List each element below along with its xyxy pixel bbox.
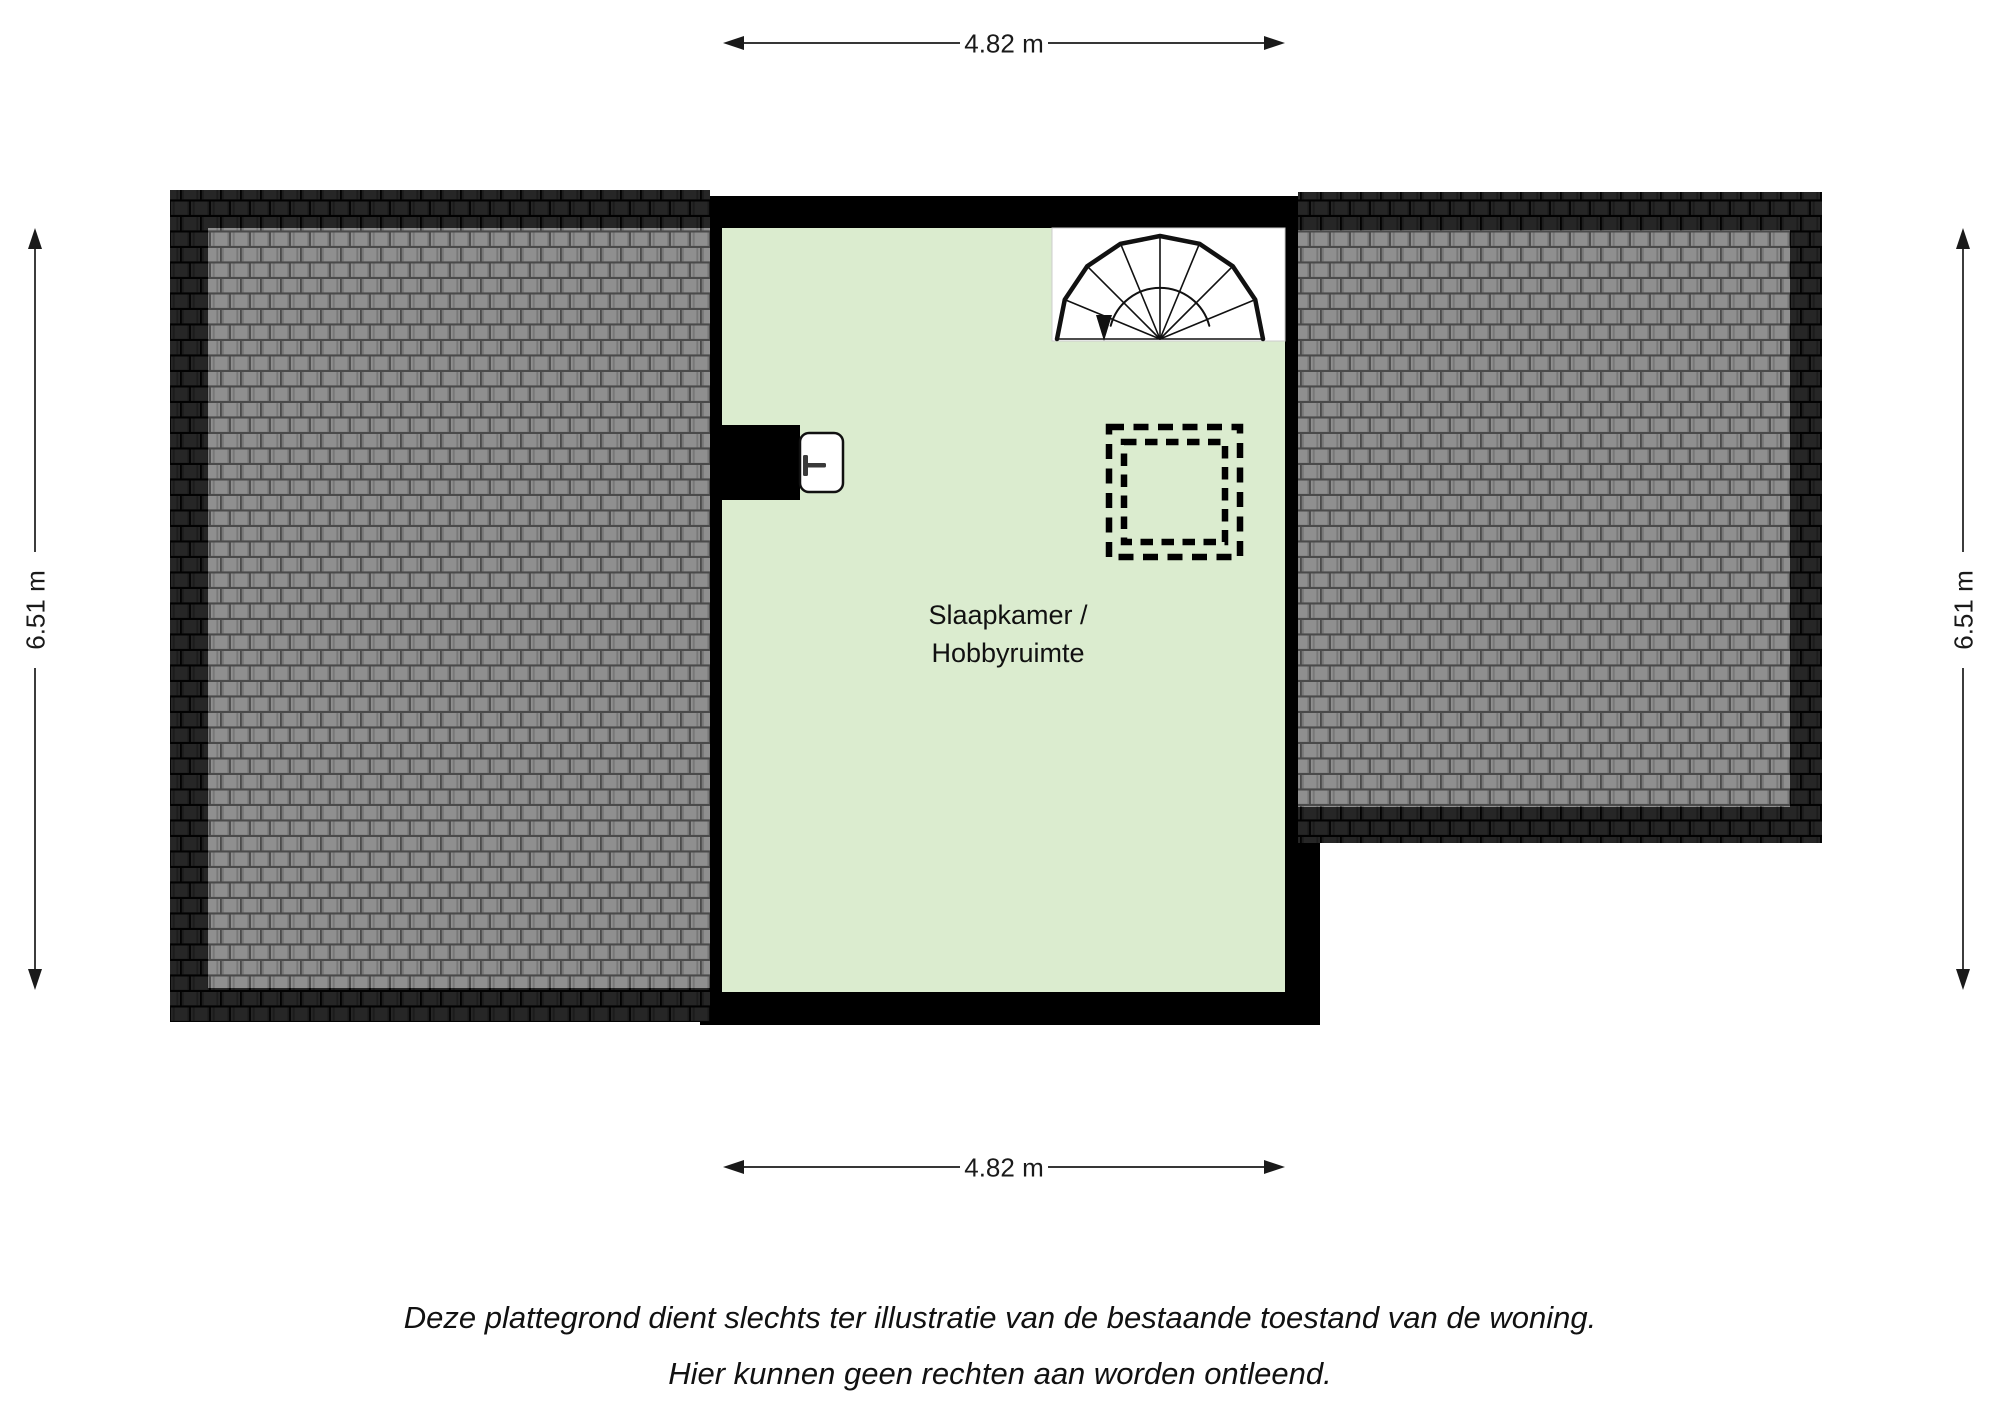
dimension-bottom-label: 4.82 m bbox=[964, 1153, 1044, 1184]
room-label-line1: Slaapkamer / bbox=[928, 596, 1087, 634]
disclaimer-line2: Hier kunnen geen rechten aan worden ontl… bbox=[0, 1346, 2000, 1402]
dimension-right-label: 6.51 m bbox=[1949, 570, 1980, 650]
roof-right bbox=[1298, 192, 1822, 843]
disclaimer-line1: Deze plattegrond dient slechts ter illus… bbox=[0, 1290, 2000, 1346]
room-label: Slaapkamer / Hobbyruimte bbox=[928, 596, 1087, 672]
room-label-line2: Hobbyruimte bbox=[928, 634, 1087, 672]
disclaimer-text: Deze plattegrond dient slechts ter illus… bbox=[0, 1290, 2000, 1402]
dimension-top-label: 4.82 m bbox=[964, 29, 1044, 60]
floor-plan-drawing bbox=[0, 0, 2000, 1414]
door-icon bbox=[800, 433, 843, 492]
dimension-left-label: 6.51 m bbox=[21, 570, 52, 650]
stairwell bbox=[1052, 228, 1285, 341]
roof-left bbox=[170, 190, 710, 1022]
door-unit bbox=[722, 425, 843, 500]
floor-plan: 4.82 m 4.82 m 6.51 m 6.51 m Slaapkamer /… bbox=[0, 0, 2000, 1414]
